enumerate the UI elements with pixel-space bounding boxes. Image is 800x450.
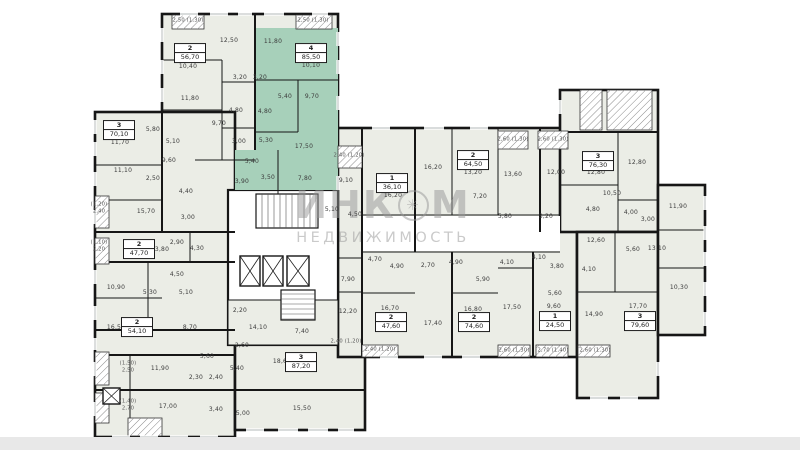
balcony-area-label: 2,70 xyxy=(122,406,134,411)
room-area-label: 4,30 xyxy=(190,246,204,252)
room-area-label: 10,50 xyxy=(603,191,621,197)
room-area-label: 4,10 xyxy=(500,260,514,266)
room-area-label: 17,70 xyxy=(629,304,647,310)
room-area-label: 5,10 xyxy=(166,139,180,145)
room-area-label: 12,80 xyxy=(628,160,646,166)
apartment-badge-highlighted: 485,50 xyxy=(295,43,327,63)
floor-plan: ИНК✳М НЕДВИЖИМОСТЬ 12,5010,4011,803,204,… xyxy=(0,0,800,450)
balcony-area-label: 2,60 (1,30) xyxy=(538,137,569,142)
room-area-label: 17,00 xyxy=(159,404,177,410)
apartment-badge: 256,70 xyxy=(174,43,206,63)
apartment-number: 3 xyxy=(625,312,655,321)
room-area-label: 17,40 xyxy=(424,321,442,327)
room-area-label: 16,20 xyxy=(384,193,402,199)
room-area-label: 4,80 xyxy=(258,109,272,115)
apartment-badge: 247,70 xyxy=(123,239,155,259)
room-area-label: 7,80 xyxy=(298,176,312,182)
room-area-label: 4,00 xyxy=(624,210,638,216)
balcony-area-label: 2,70 (1,40) xyxy=(538,348,569,353)
room-area-label: 15,50 xyxy=(293,406,311,412)
apartment-badge: 264,50 xyxy=(457,150,489,170)
apartment-area: 36,10 xyxy=(377,184,407,192)
room-area-label: 2,60 xyxy=(235,343,249,349)
room-area-label: 5,10 xyxy=(325,207,339,213)
room-area-label: 13,20 xyxy=(464,170,482,176)
apartment-area: 47,70 xyxy=(124,250,154,258)
room-area-label: 9,60 xyxy=(547,304,561,310)
room-area-label: 9,70 xyxy=(212,121,226,127)
labels-layer: 12,5010,4011,803,204,809,703,0011,8010,1… xyxy=(0,0,800,450)
apartment-area: 54,10 xyxy=(122,328,152,336)
room-area-label: 3,00 xyxy=(641,217,655,223)
room-area-label: 5,90 xyxy=(476,277,490,283)
room-area-label: 5,40 xyxy=(245,159,259,165)
room-area-label: 5,10 xyxy=(179,290,193,296)
room-area-label: 16,20 xyxy=(424,165,442,171)
room-area-label: 4,50 xyxy=(348,212,362,218)
balcony-area-label: 2,40 (1,20) xyxy=(331,339,362,344)
room-area-label: 5,60 xyxy=(548,291,562,297)
room-area-label: 10,10 xyxy=(302,63,320,69)
apartment-number: 2 xyxy=(459,313,489,322)
balcony-area-label: 2,50 (1,30) xyxy=(173,18,204,23)
apartment-badge: 379,60 xyxy=(624,311,656,331)
apartment-number: 3 xyxy=(583,152,613,161)
apartment-badge: 136,10 xyxy=(376,173,408,193)
room-area-label: 3,20 xyxy=(253,75,267,81)
apartment-area: 79,60 xyxy=(625,322,655,330)
room-area-label: 5,00 xyxy=(236,411,250,417)
balcony-area-label: 2,60 (1,30) xyxy=(499,348,530,353)
room-area-label: 17,50 xyxy=(295,144,313,150)
room-area-label: 3,20 xyxy=(539,214,553,220)
room-area-label: 5,40 xyxy=(278,94,292,100)
balcony-area-label: 2,20 xyxy=(93,247,105,252)
room-area-label: 9,70 xyxy=(305,94,319,100)
apartment-area: 85,50 xyxy=(296,54,326,62)
apartment-area: 70,10 xyxy=(104,131,134,139)
balcony-area-label: (1,40) xyxy=(120,399,137,404)
room-area-label: 4,90 xyxy=(390,264,404,270)
apartment-area: 64,50 xyxy=(458,161,488,169)
balcony-area-label: 2,40 (1,20) xyxy=(334,153,365,158)
room-area-label: 5,40 xyxy=(230,366,244,372)
room-area-label: 4,90 xyxy=(449,260,463,266)
room-area-label: 15,70 xyxy=(137,209,155,215)
room-area-label: 4,40 xyxy=(179,189,193,195)
balcony-area-label: 2,50 (1,30) xyxy=(298,18,329,23)
room-area-label: 5,60 xyxy=(626,247,640,253)
apartment-number: 2 xyxy=(175,44,205,53)
room-area-label: 3,00 xyxy=(181,215,195,221)
apartment-badge: 124,50 xyxy=(539,311,571,331)
room-area-label: 4,70 xyxy=(368,257,382,263)
room-area-label: 11,70 xyxy=(111,140,129,146)
apartment-number: 4 xyxy=(296,44,326,53)
room-area-label: 5,30 xyxy=(143,290,157,296)
room-area-label: 11,90 xyxy=(669,204,687,210)
room-area-label: 10,30 xyxy=(670,285,688,291)
apartment-area: 76,30 xyxy=(583,162,613,170)
room-area-label: 3,40 xyxy=(209,407,223,413)
balcony-area-label: (1,50) xyxy=(120,361,137,366)
room-area-label: 5,60 xyxy=(200,354,214,360)
balcony-area-label: (1,20) xyxy=(91,202,108,207)
room-area-label: 3,20 xyxy=(233,75,247,81)
balcony-area-label: (1,10) xyxy=(91,240,108,245)
room-area-label: 12,60 xyxy=(587,238,605,244)
apartment-badge: 247,60 xyxy=(375,312,407,332)
apartment-number: 2 xyxy=(458,151,488,160)
room-area-label: 2,20 xyxy=(233,308,247,314)
room-area-label: 14,90 xyxy=(585,312,603,318)
room-area-label: 4,10 xyxy=(582,267,596,273)
apartment-area: 87,20 xyxy=(286,363,316,371)
room-area-label: 12,20 xyxy=(339,309,357,315)
balcony-area-label: 2,50 xyxy=(122,368,134,373)
room-area-label: 10,40 xyxy=(179,64,197,70)
balcony-area-label: 2,60 (1,30) xyxy=(580,348,611,353)
room-area-label: 11,10 xyxy=(114,168,132,174)
apartment-number: 1 xyxy=(540,312,570,321)
apartment-badge: 254,10 xyxy=(121,317,153,337)
apartment-number: 3 xyxy=(286,353,316,362)
room-area-label: 4,80 xyxy=(586,207,600,213)
apartment-number: 1 xyxy=(377,174,407,183)
apartment-number: 3 xyxy=(104,121,134,130)
room-area-label: 12,00 xyxy=(547,170,565,176)
room-area-label: 9,60 xyxy=(162,158,176,164)
apartment-area: 56,70 xyxy=(175,54,205,62)
room-area-label: 12,50 xyxy=(220,38,238,44)
room-area-label: 2,70 xyxy=(421,263,435,269)
room-area-label: 5,80 xyxy=(146,127,160,133)
room-area-label: 2,40 xyxy=(209,375,223,381)
room-area-label: 13,60 xyxy=(504,172,522,178)
room-area-label: 3,50 xyxy=(261,175,275,181)
room-area-label: 5,80 xyxy=(498,214,512,220)
apartment-badge: 387,20 xyxy=(285,352,317,372)
room-area-label: 11,80 xyxy=(264,39,282,45)
apartment-area: 74,60 xyxy=(459,323,489,331)
room-area-label: 4,10 xyxy=(532,255,546,261)
apartment-area: 47,60 xyxy=(376,323,406,331)
apartment-number: 2 xyxy=(376,313,406,322)
room-area-label: 3,90 xyxy=(235,179,249,185)
balcony-area-label: 2,40 (1,20) xyxy=(365,347,396,352)
apartment-number: 2 xyxy=(124,240,154,249)
apartment-badge: 370,10 xyxy=(103,120,135,140)
room-area-label: 14,10 xyxy=(249,325,267,331)
room-area-label: 2,30 xyxy=(189,375,203,381)
room-area-label: 8,70 xyxy=(183,325,197,331)
apartment-badge: 274,60 xyxy=(458,312,490,332)
room-area-label: 9,10 xyxy=(339,178,353,184)
room-area-label: 5,30 xyxy=(259,138,273,144)
room-area-label: 2,50 xyxy=(146,176,160,182)
apartment-number: 2 xyxy=(122,318,152,327)
room-area-label: 10,90 xyxy=(107,285,125,291)
room-area-label: 4,80 xyxy=(229,108,243,114)
balcony-area-label: 2,40 xyxy=(93,209,105,214)
room-area-label: 7,90 xyxy=(341,277,355,283)
room-area-label: 11,80 xyxy=(181,96,199,102)
room-area-label: 13,10 xyxy=(648,246,666,252)
room-area-label: 7,40 xyxy=(295,329,309,335)
room-area-label: 2,90 xyxy=(170,240,184,246)
room-area-label: 11,90 xyxy=(151,366,169,372)
room-area-label: 3,00 xyxy=(232,139,246,145)
apartment-area: 24,50 xyxy=(540,322,570,330)
room-area-label: 3,80 xyxy=(550,264,564,270)
room-area-label: 7,20 xyxy=(473,194,487,200)
apartment-badge: 376,30 xyxy=(582,151,614,171)
balcony-area-label: 2,60 (1,30) xyxy=(498,137,529,142)
room-area-label: 4,50 xyxy=(170,272,184,278)
room-area-label: 17,50 xyxy=(503,305,521,311)
